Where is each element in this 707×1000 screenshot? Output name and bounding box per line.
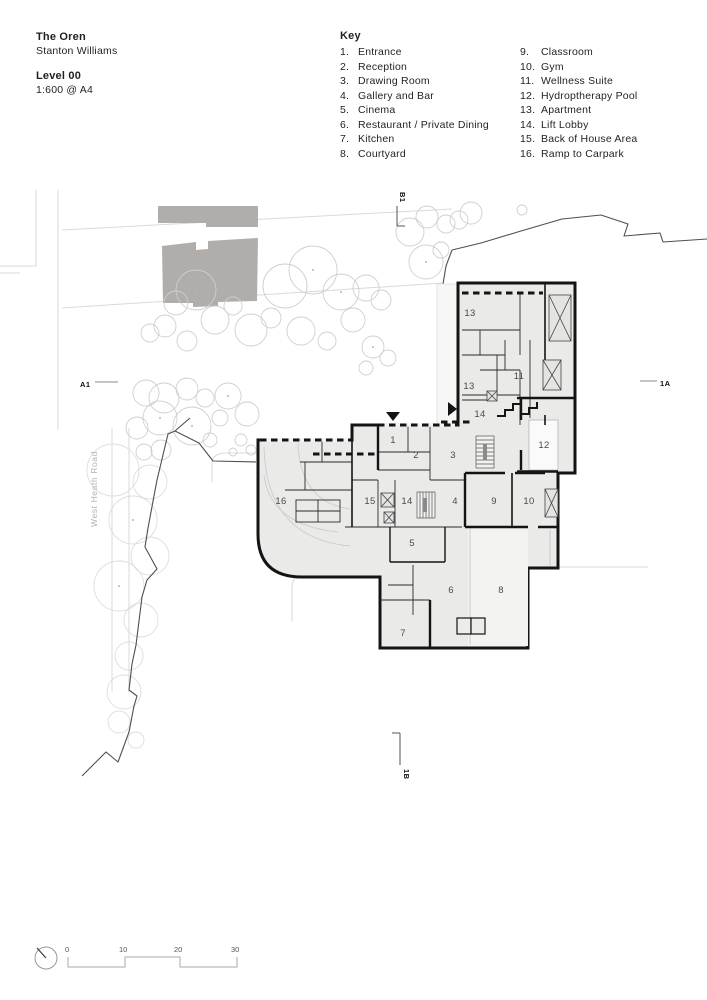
road-lines <box>0 190 129 692</box>
stair <box>476 436 494 468</box>
courtyard-steps <box>457 618 485 634</box>
room-label: 11 <box>514 371 524 382</box>
room-label: 5 <box>409 538 415 549</box>
north-arrow-icon <box>35 947 57 969</box>
room-label: 14 <box>401 496 412 507</box>
svg-text:20: 20 <box>174 945 182 954</box>
room-label: 7 <box>400 628 406 639</box>
svg-text:10: 10 <box>119 945 127 954</box>
room-label: 13 <box>464 308 475 319</box>
site-plan-drawing: 13 13 11 14 12 1 2 3 4 9 10 15 14 5 6 7 … <box>0 0 707 1000</box>
svg-text:0: 0 <box>65 945 69 954</box>
section-marker-right: 1A <box>640 379 671 388</box>
svg-text:B1: B1 <box>398 192 407 203</box>
road-name-label: West Heath Road <box>89 451 99 527</box>
room-label: 14 <box>474 409 485 420</box>
svg-text:1A: 1A <box>660 379 671 388</box>
section-marker-bottom: 1B <box>392 733 411 780</box>
room-label: 2 <box>413 450 419 461</box>
svg-text:30: 30 <box>231 945 239 954</box>
context-buildings <box>158 206 258 307</box>
room-label: 8 <box>498 585 504 596</box>
room-label: 15 <box>364 496 375 507</box>
room-label: 13 <box>463 381 474 392</box>
svg-text:1B: 1B <box>402 769 411 780</box>
room-label: 9 <box>491 496 497 507</box>
terrace-offset <box>437 284 458 425</box>
section-marker-left: A1 <box>80 380 118 389</box>
room-label: 4 <box>452 496 458 507</box>
room-label: 12 <box>538 440 549 451</box>
context-building <box>162 238 258 307</box>
room-label: 16 <box>275 496 286 507</box>
room-label: 1 <box>390 435 396 446</box>
entrance-arrow-down-icon <box>386 412 400 421</box>
room-label: 3 <box>450 450 456 461</box>
room-label: 10 <box>523 496 534 507</box>
scale-bar: 0 10 20 30 <box>65 945 239 967</box>
room-label: 6 <box>448 585 454 596</box>
svg-text:A1: A1 <box>80 380 91 389</box>
stair <box>417 492 435 518</box>
